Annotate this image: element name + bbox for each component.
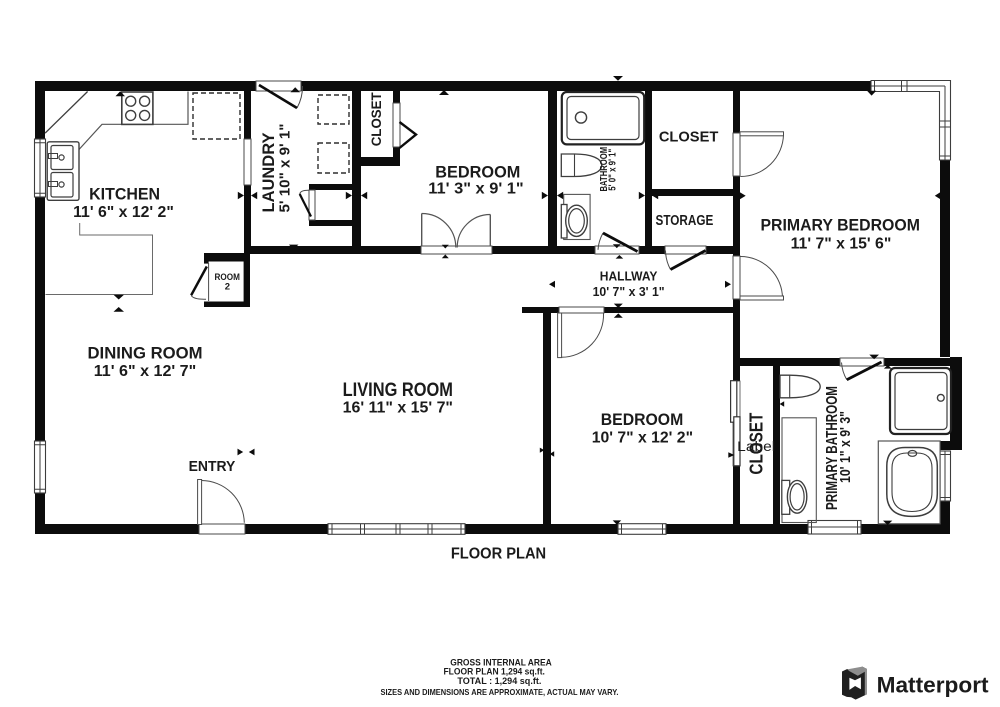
svg-text:10' 7" x 12' 2": 10' 7" x 12' 2" [592,429,693,446]
svg-text:2: 2 [225,282,230,293]
svg-text:LAUNDRY: LAUNDRY [259,132,278,213]
svg-text:11' 3" x 9' 1": 11' 3" x 9' 1" [428,180,523,197]
svg-text:11' 6" x 12' 2": 11' 6" x 12' 2" [73,204,174,221]
svg-text:Label: Label [737,438,775,454]
svg-text:CLOSET: CLOSET [659,129,719,146]
svg-text:5' 0" x 9' 1": 5' 0" x 9' 1" [607,149,618,191]
svg-text:TOTAL : 1,294 sq.ft.: TOTAL : 1,294 sq.ft. [457,676,541,686]
svg-text:FLOOR PLAN: FLOOR PLAN [451,546,546,563]
svg-text:Matterport: Matterport [877,672,990,697]
svg-text:5' 10" x 9' 1": 5' 10" x 9' 1" [277,124,294,213]
svg-text:10' 7" x 3' 1": 10' 7" x 3' 1" [593,285,665,299]
svg-text:ENTRY: ENTRY [189,458,236,475]
svg-text:BEDROOM: BEDROOM [435,163,520,182]
svg-text:16' 11" x 15' 7": 16' 11" x 15' 7" [343,399,453,416]
svg-text:BEDROOM: BEDROOM [601,410,684,429]
svg-text:LIVING ROOM: LIVING ROOM [343,380,453,401]
svg-text:10' 1" x 9' 3": 10' 1" x 9' 3" [837,411,854,483]
svg-text:11' 6" x 12' 7": 11' 6" x 12' 7" [94,363,197,380]
svg-text:11' 7" x 15' 6": 11' 7" x 15' 6" [791,235,892,252]
svg-text:KITCHEN: KITCHEN [89,185,160,204]
svg-text:CLOSET: CLOSET [369,92,384,147]
svg-text:PRIMARY BEDROOM: PRIMARY BEDROOM [760,216,920,235]
svg-text:STORAGE: STORAGE [656,213,714,229]
svg-text:DINING ROOM: DINING ROOM [88,343,203,362]
svg-text:SIZES AND DIMENSIONS ARE APPRO: SIZES AND DIMENSIONS ARE APPROXIMATE, AC… [381,687,619,697]
svg-text:HALLWAY: HALLWAY [600,269,658,284]
